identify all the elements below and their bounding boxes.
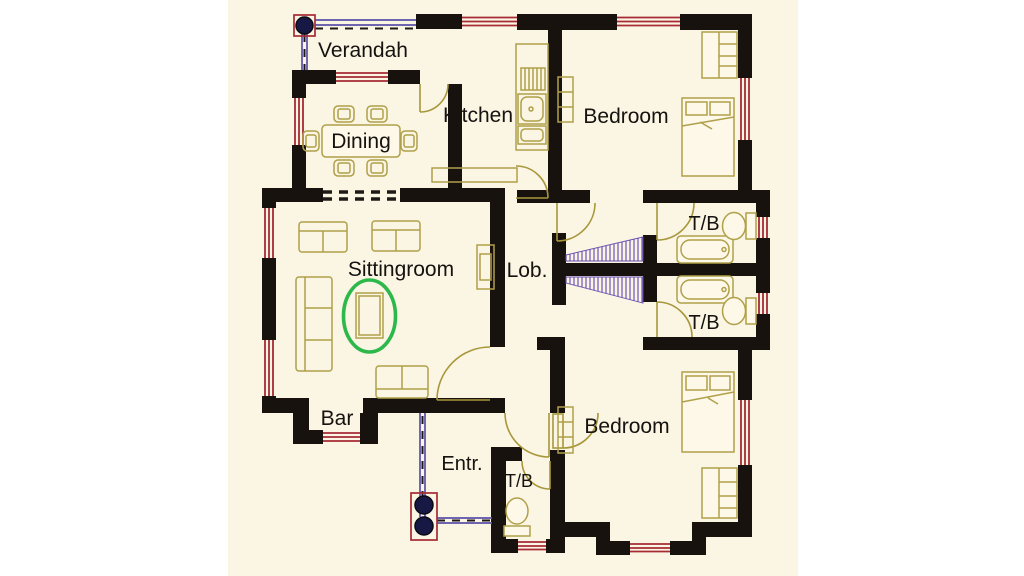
- label-entrance: Entr.: [441, 453, 482, 475]
- bed-top-icon: [682, 98, 734, 176]
- label-bar: Bar: [321, 407, 354, 430]
- bathtub-bottom-icon: [677, 276, 733, 303]
- label-bedroom-top: Bedroom: [583, 105, 668, 128]
- wardrobe-top-icon: [702, 32, 737, 78]
- label-tb-bottom: T/B: [688, 312, 719, 334]
- label-lobby: Lob.: [507, 259, 548, 282]
- label-tb-top: T/B: [688, 213, 719, 235]
- label-bedroom-bottom: Bedroom: [584, 415, 669, 438]
- label-kitchen: Kitchen: [443, 104, 513, 127]
- column-entrance-1: [415, 496, 433, 514]
- label-verandah: Verandah: [318, 39, 408, 62]
- column-verandah: [296, 17, 313, 34]
- bed-bottom-icon: [682, 372, 734, 452]
- label-tb-entrance: T/B: [505, 471, 533, 491]
- toilet-bottom-icon: [723, 298, 757, 325]
- label-dining: Dining: [331, 130, 391, 153]
- toilet-top-icon: [723, 213, 757, 240]
- column-entrance-2: [415, 517, 433, 535]
- label-sittingroom: Sittingroom: [348, 258, 454, 281]
- bathtub-top-icon: [677, 236, 733, 263]
- floor-plan-canvas: Verandah Kitchen Bedroom Dining Sittingr…: [0, 0, 1024, 576]
- wardrobe-bottom-icon: [702, 468, 737, 518]
- floor-plan-page: Verandah Kitchen Bedroom Dining Sittingr…: [0, 0, 1024, 576]
- toilet-entrance-icon: [504, 498, 530, 536]
